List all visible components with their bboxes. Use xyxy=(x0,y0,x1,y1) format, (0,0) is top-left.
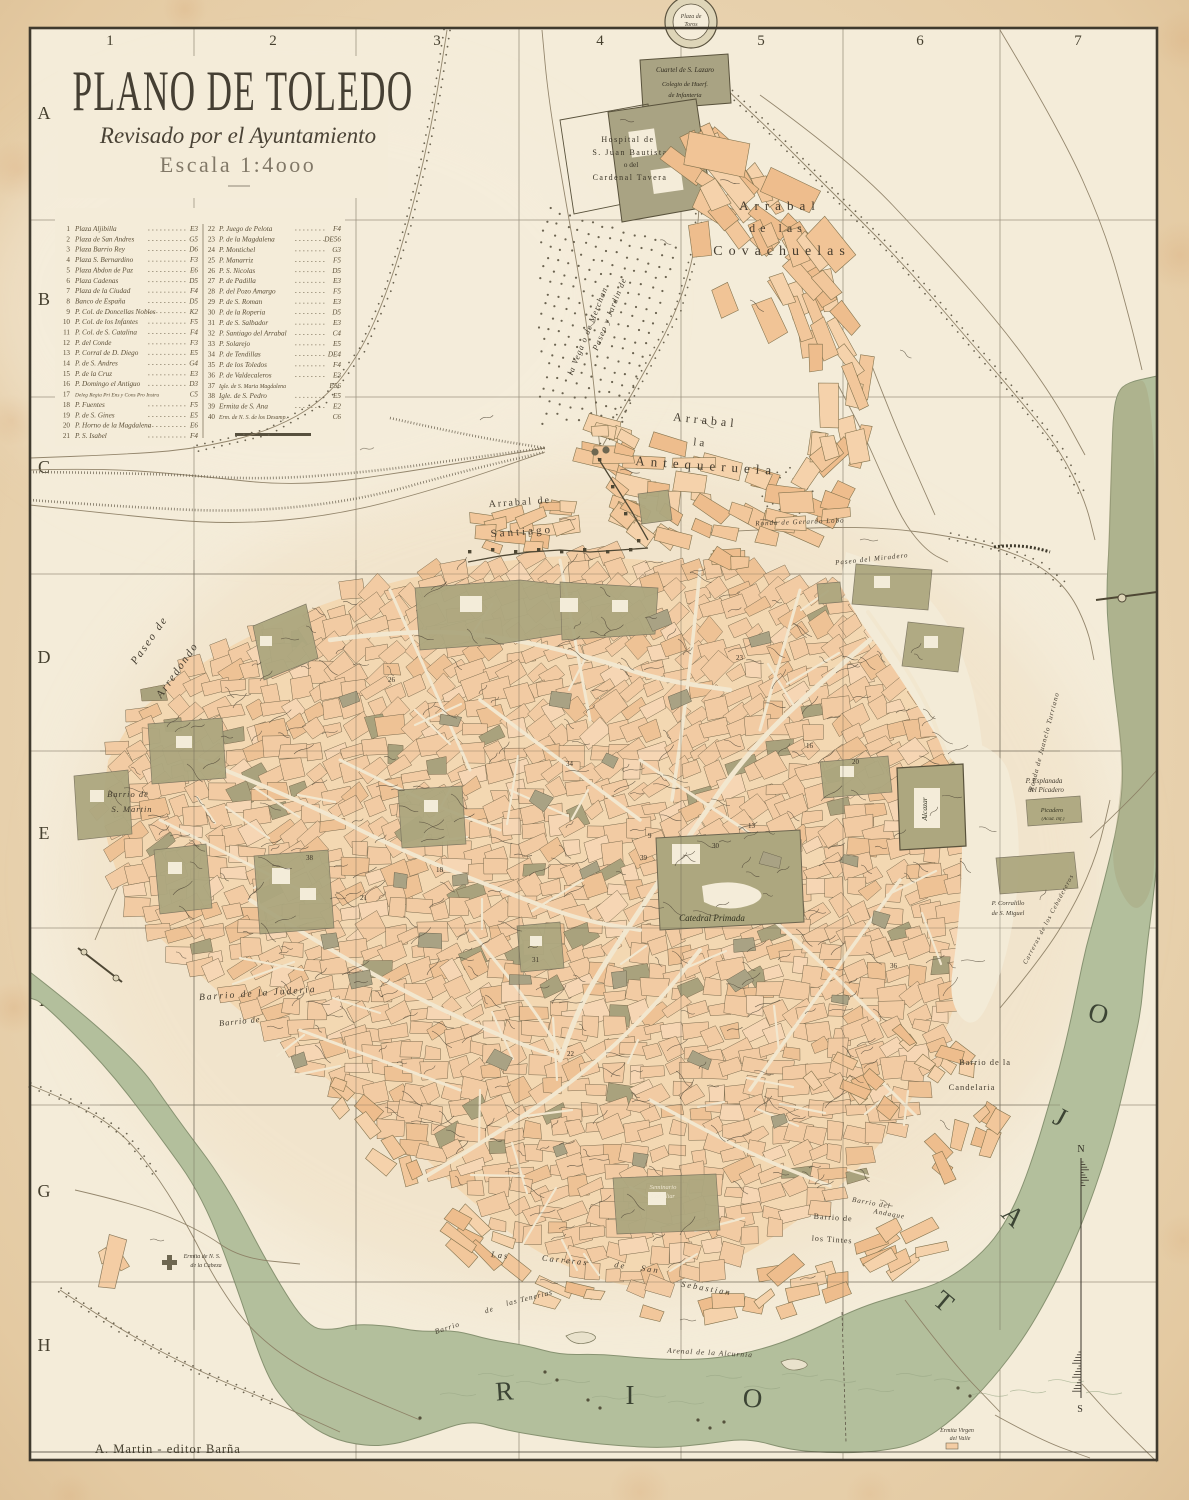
svg-text:27: 27 xyxy=(208,277,216,285)
svg-text:Plaza de la Ciudad: Plaza de la Ciudad xyxy=(74,287,131,295)
svg-text:20: 20 xyxy=(63,422,71,430)
svg-text:37: 37 xyxy=(208,382,216,390)
svg-text:de las: de las xyxy=(749,221,807,235)
svg-text:G3: G3 xyxy=(332,246,341,254)
svg-text:E5: E5 xyxy=(332,392,341,400)
svg-text:5: 5 xyxy=(757,33,765,49)
svg-text:E3: E3 xyxy=(332,298,341,306)
svg-text:N: N xyxy=(1077,1144,1084,1155)
svg-text:P. de S. Gines: P. de S. Gines xyxy=(74,411,115,419)
svg-text:D5: D5 xyxy=(188,277,198,285)
svg-text:7: 7 xyxy=(1074,33,1082,49)
svg-text:Plaza Abdon de Paz: Plaza Abdon de Paz xyxy=(74,266,133,274)
svg-text:A: A xyxy=(38,103,51,123)
svg-text:Plaza de San Andres: Plaza de San Andres xyxy=(74,235,134,243)
svg-text:R: R xyxy=(494,1375,514,1406)
svg-text:12: 12 xyxy=(63,339,71,347)
svg-text:2: 2 xyxy=(269,33,277,49)
svg-text:E3: E3 xyxy=(332,319,341,327)
svg-text:F5: F5 xyxy=(332,288,341,296)
svg-text:10: 10 xyxy=(63,318,71,326)
svg-text:7: 7 xyxy=(66,287,70,295)
svg-text:Plaza Cadenas: Plaza Cadenas xyxy=(74,277,119,285)
svg-text:23: 23 xyxy=(208,235,216,243)
svg-text:C5: C5 xyxy=(190,391,199,399)
svg-text:P. Domingo el Antiguo: P. Domingo el Antiguo xyxy=(74,380,141,388)
svg-text:E3: E3 xyxy=(189,370,198,378)
svg-text:F3: F3 xyxy=(189,256,198,264)
svg-text:la: la xyxy=(693,436,708,449)
svg-text:Cuartel de S. Lazaro: Cuartel de S. Lazaro xyxy=(656,66,715,74)
svg-text:C: C xyxy=(38,457,50,477)
svg-text:P. de Tendillas: P. de Tendillas xyxy=(218,350,261,358)
svg-text:P. de S. Roman: P. de S. Roman xyxy=(218,298,263,306)
svg-text:39: 39 xyxy=(208,403,216,411)
svg-text:29: 29 xyxy=(208,298,216,306)
svg-text:17: 17 xyxy=(63,391,71,399)
svg-text:36: 36 xyxy=(890,962,898,970)
svg-text:34: 34 xyxy=(208,350,216,358)
svg-text:F5: F5 xyxy=(189,318,198,326)
svg-text:31: 31 xyxy=(532,956,540,964)
svg-text:F4: F4 xyxy=(189,287,198,295)
svg-text:F5: F5 xyxy=(189,401,198,409)
svg-text:4: 4 xyxy=(596,33,604,49)
svg-text:P. de la Magdalena: P. de la Magdalena xyxy=(218,235,275,243)
svg-text:38: 38 xyxy=(208,392,216,400)
svg-text:23: 23 xyxy=(736,654,744,662)
svg-text:14: 14 xyxy=(63,360,71,368)
svg-text:15: 15 xyxy=(63,370,71,378)
svg-text:Igle. de S. Maria Magdalena: Igle. de S. Maria Magdalena xyxy=(218,384,286,390)
svg-text:E3: E3 xyxy=(332,277,341,285)
svg-text:1: 1 xyxy=(66,225,70,233)
svg-text:E6: E6 xyxy=(189,422,198,430)
svg-text:36: 36 xyxy=(208,371,216,379)
svg-text:S: S xyxy=(1077,1404,1083,1415)
svg-text:P. de Valdecaleros: P. de Valdecaleros xyxy=(218,371,272,379)
svg-text:5: 5 xyxy=(66,266,70,274)
svg-text:2: 2 xyxy=(66,235,70,243)
svg-text:D6: D6 xyxy=(188,246,198,254)
svg-text:H: H xyxy=(38,1335,51,1355)
svg-text:39: 39 xyxy=(640,854,648,862)
svg-text:P. Col. de los Infantes: P. Col. de los Infantes xyxy=(74,318,138,326)
svg-text:Barrio de: Barrio de xyxy=(107,789,149,799)
svg-text:C6: C6 xyxy=(333,413,342,421)
svg-text:6: 6 xyxy=(66,277,70,285)
svg-text:21: 21 xyxy=(63,432,71,440)
svg-text:S. Martin: S. Martin xyxy=(111,804,152,814)
svg-text:22: 22 xyxy=(208,225,216,233)
svg-text:Conciliar: Conciliar xyxy=(651,1193,675,1200)
svg-text:Plaza S. Bernardino: Plaza S. Bernardino xyxy=(74,256,134,264)
svg-text:P. del Pozo Amargo: P. del Pozo Amargo xyxy=(218,288,276,296)
svg-text:3: 3 xyxy=(433,33,441,49)
svg-text:P. Col. de S. Catalina: P. Col. de S. Catalina xyxy=(74,329,137,337)
svg-text:Cardenal Tavera: Cardenal Tavera xyxy=(593,173,668,182)
svg-text:F4: F4 xyxy=(332,225,341,233)
svg-text:P. de S. Salbador: P. de S. Salbador xyxy=(218,319,268,327)
svg-text:de: de xyxy=(614,1259,627,1271)
svg-text:F5: F5 xyxy=(332,256,341,264)
svg-text:P. de la Roperia: P. de la Roperia xyxy=(218,309,266,317)
svg-text:Hospital de: Hospital de xyxy=(601,135,654,144)
svg-text:9: 9 xyxy=(648,832,652,840)
svg-text:D3: D3 xyxy=(188,380,198,388)
svg-text:E6: E6 xyxy=(189,266,198,274)
svg-text:1: 1 xyxy=(106,33,114,49)
svg-text:9: 9 xyxy=(66,308,70,316)
svg-text:Covachuelas: Covachuelas xyxy=(713,244,851,259)
svg-text:26: 26 xyxy=(388,676,396,684)
svg-text:20: 20 xyxy=(852,758,860,766)
svg-text:P. S. Nicolas: P. S. Nicolas xyxy=(218,267,255,275)
svg-text:24: 24 xyxy=(208,246,216,254)
svg-text:Plaza Barrio Rey: Plaza Barrio Rey xyxy=(74,246,126,254)
svg-text:18: 18 xyxy=(436,866,444,874)
svg-text:D5: D5 xyxy=(188,297,198,305)
svg-text:E5: E5 xyxy=(332,340,341,348)
svg-text:DE56: DE56 xyxy=(323,235,341,243)
svg-text:P. Juego de Pelota: P. Juego de Pelota xyxy=(218,225,273,233)
svg-text:Escala 1:4ooo: Escala 1:4ooo xyxy=(160,152,317,177)
svg-text:Seminario: Seminario xyxy=(650,1184,677,1191)
svg-text:Banco de España: Banco de España xyxy=(75,297,126,305)
svg-text:Plaza Aljibilla: Plaza Aljibilla xyxy=(74,225,117,233)
svg-text:34: 34 xyxy=(566,760,574,768)
svg-text:P. Corral de D. Diego: P. Corral de D. Diego xyxy=(74,349,139,357)
svg-text:A. Martin - editor Barña: A. Martin - editor Barña xyxy=(95,1442,241,1456)
svg-text:de la Cabeza: de la Cabeza xyxy=(190,1263,221,1269)
svg-text:Colegio de Huerf.: Colegio de Huerf. xyxy=(662,81,708,88)
svg-text:P. Corralillo: P. Corralillo xyxy=(991,900,1026,907)
svg-text:E3: E3 xyxy=(189,225,198,233)
svg-text:P. Solarejo: P. Solarejo xyxy=(218,340,251,348)
svg-text:F3: F3 xyxy=(189,339,198,347)
svg-text:8: 8 xyxy=(66,297,70,305)
svg-text:I: I xyxy=(626,1380,635,1410)
svg-text:PLANO DE TOLEDO: PLANO DE TOLEDO xyxy=(73,61,414,124)
svg-text:P. Montichel: P. Montichel xyxy=(218,246,255,254)
svg-text:Ermita de S. Ana: Ermita de S. Ana xyxy=(218,403,268,411)
svg-text:30: 30 xyxy=(712,842,720,850)
svg-text:Erm. de N. S. de los Desamp.: Erm. de N. S. de los Desamp. xyxy=(218,415,287,421)
svg-text:6: 6 xyxy=(916,33,924,49)
svg-text:Arrabal: Arrabal xyxy=(739,198,821,213)
svg-text:Catedral Primada: Catedral Primada xyxy=(679,913,745,923)
svg-text:P. Horno de la Magdalena: P. Horno de la Magdalena xyxy=(74,422,152,430)
svg-text:de Infanteria: de Infanteria xyxy=(668,92,701,99)
svg-text:30: 30 xyxy=(208,309,216,317)
svg-text:Las: Las xyxy=(490,1249,510,1261)
svg-text:25: 25 xyxy=(208,256,216,264)
svg-text:26: 26 xyxy=(208,267,216,275)
svg-text:P. Manarriz: P. Manarriz xyxy=(218,256,253,264)
svg-text:B: B xyxy=(38,289,50,309)
svg-text:31: 31 xyxy=(208,319,216,327)
svg-text:E5: E5 xyxy=(189,411,198,419)
svg-text:D: D xyxy=(38,647,51,667)
svg-text:F4: F4 xyxy=(189,329,198,337)
svg-text:G5: G5 xyxy=(189,235,198,243)
svg-text:C4: C4 xyxy=(333,330,342,338)
svg-text:P. Fuentes: P. Fuentes xyxy=(74,401,105,409)
svg-text:13: 13 xyxy=(748,822,756,830)
svg-text:P. de la Cruz: P. de la Cruz xyxy=(74,370,112,378)
svg-text:40: 40 xyxy=(208,413,216,421)
svg-text:18: 18 xyxy=(63,401,71,409)
svg-text:Deleg Regia Pri Ens y Cons Pro: Deleg Regia Pri Ens y Cons Pro Instru xyxy=(74,393,159,399)
svg-text:22: 22 xyxy=(567,1050,575,1058)
svg-text:D5: D5 xyxy=(331,267,341,275)
svg-text:Ermita de N. S.: Ermita de N. S. xyxy=(183,1254,221,1260)
svg-text:19: 19 xyxy=(63,411,71,419)
svg-text:E2: E2 xyxy=(332,403,341,411)
svg-text:Barrio de la: Barrio de la xyxy=(959,1057,1011,1067)
svg-text:O: O xyxy=(742,1382,764,1413)
svg-text:4: 4 xyxy=(66,256,70,264)
svg-text:P. del Conde: P. del Conde xyxy=(74,339,112,347)
svg-text:38: 38 xyxy=(306,854,314,862)
svg-text:P. Santiago del Arrabal: P. Santiago del Arrabal xyxy=(218,330,287,338)
svg-text:Plaza de: Plaza de xyxy=(680,14,702,20)
svg-text:E: E xyxy=(39,823,50,843)
svg-text:G: G xyxy=(38,1181,51,1201)
svg-text:(Acad. Inf.): (Acad. Inf.) xyxy=(1042,817,1065,822)
svg-text:13: 13 xyxy=(63,349,71,357)
svg-text:Candelaria: Candelaria xyxy=(949,1082,996,1092)
svg-text:P. de S. Andres: P. de S. Andres xyxy=(74,360,118,368)
svg-text:P. de Padilla: P. de Padilla xyxy=(218,277,256,285)
svg-text:11: 11 xyxy=(63,329,70,337)
svg-text:G4: G4 xyxy=(189,360,198,368)
svg-text:Alcazar: Alcazar xyxy=(920,797,929,821)
svg-text:F4: F4 xyxy=(189,432,198,440)
svg-text:K2: K2 xyxy=(189,308,199,316)
svg-text:28: 28 xyxy=(208,288,216,296)
svg-text:del Valle: del Valle xyxy=(950,1436,971,1442)
svg-text:16: 16 xyxy=(806,742,814,750)
svg-text:21: 21 xyxy=(360,894,368,902)
svg-text:Picadero: Picadero xyxy=(1040,807,1063,814)
svg-text:DE4: DE4 xyxy=(327,350,342,358)
svg-text:P. S. Isabel: P. S. Isabel xyxy=(74,432,107,440)
svg-text:F4: F4 xyxy=(332,361,341,369)
svg-text:16: 16 xyxy=(63,380,71,388)
svg-text:D5: D5 xyxy=(331,309,341,317)
svg-text:S. Juan Bautista: S. Juan Bautista xyxy=(592,148,667,157)
svg-text:o del: o del xyxy=(624,160,639,169)
svg-text:Ermita Virgen: Ermita Virgen xyxy=(939,1428,974,1434)
svg-text:Igle. de S. Pedro: Igle. de S. Pedro xyxy=(218,392,267,400)
svg-text:32: 32 xyxy=(208,330,216,338)
svg-text:E5: E5 xyxy=(189,349,198,357)
svg-text:P. de los Toledos: P. de los Toledos xyxy=(218,361,267,369)
svg-text:33: 33 xyxy=(208,340,216,348)
svg-text:3: 3 xyxy=(66,246,70,254)
svg-text:de S. Miguel: de S. Miguel xyxy=(992,910,1025,917)
svg-text:35: 35 xyxy=(208,361,216,369)
svg-text:E3: E3 xyxy=(332,371,341,379)
svg-text:Revisado por el Ayuntamiento: Revisado por el Ayuntamiento xyxy=(99,123,376,148)
svg-text:P. Col. de Doncellas Nobles: P. Col. de Doncellas Nobles xyxy=(74,308,156,316)
